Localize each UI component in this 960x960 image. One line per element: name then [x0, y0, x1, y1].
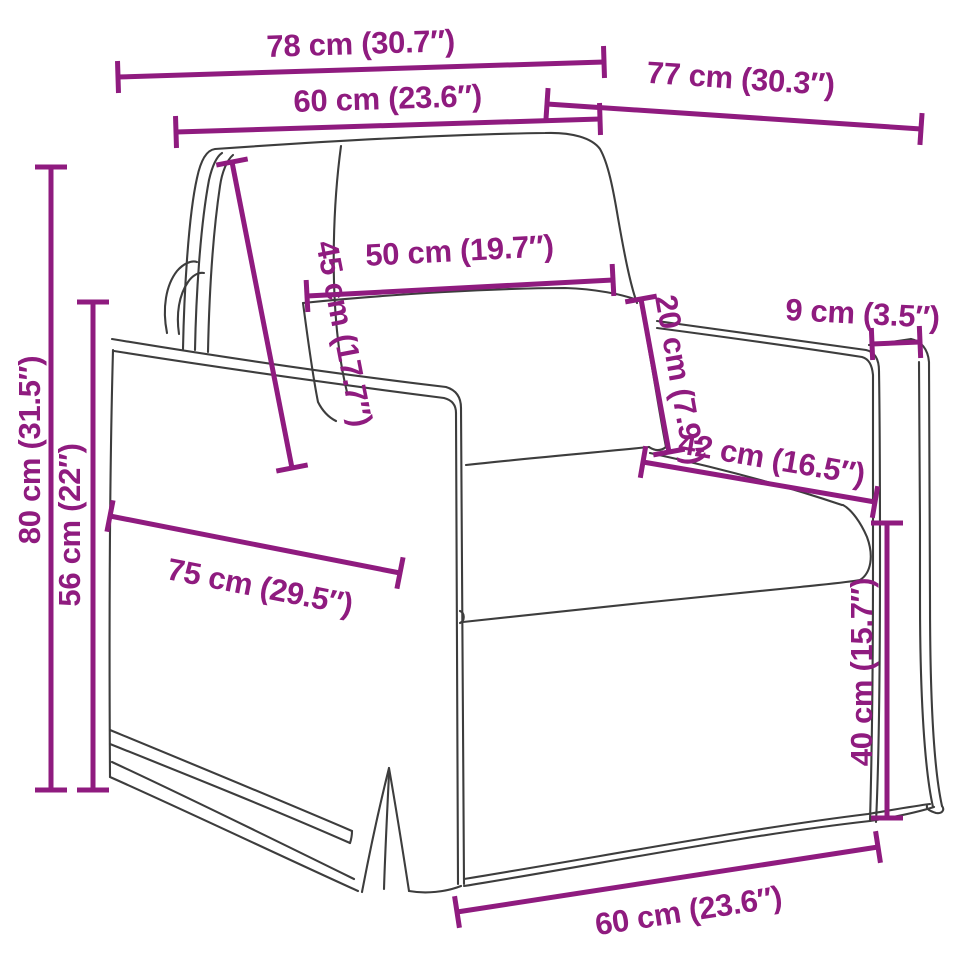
dimension-label: 50 cm (19.7″)	[364, 228, 554, 273]
dimension-end-tick	[397, 557, 403, 588]
hem-after-pleat	[409, 886, 461, 892]
dimension-back-cushion-height: 45 cm (17.7″)	[216, 159, 379, 471]
dimension-line	[176, 119, 600, 132]
skirt-band-top	[110, 730, 352, 831]
dimension-label: 78 cm (30.7″)	[266, 23, 455, 64]
dimension-end-tick	[276, 465, 307, 471]
seat-back-crease	[466, 447, 649, 465]
lumbar-pillow-bottom-corner	[649, 447, 666, 450]
dimension-line	[547, 104, 921, 129]
left-panel-hem-inner	[112, 762, 354, 879]
dimension-front-width-bottom: 60 cm (23.6″)	[455, 831, 881, 942]
armrest-left-top-edge-outer	[112, 339, 461, 408]
dimension-end-tick	[546, 88, 548, 120]
dimension-line	[118, 62, 604, 77]
dimension-arm-height: 56 cm (22″)	[52, 302, 109, 790]
dimension-end-tick	[876, 831, 881, 863]
front-hem-upper	[464, 804, 930, 879]
dimension-end-tick	[612, 264, 614, 296]
dimension-end-tick	[871, 328, 872, 360]
armchair-dimension-diagram: 78 cm (30.7″)60 cm (23.6″)77 cm (30.3″)8…	[0, 0, 960, 960]
dimension-side-depth: 75 cm (29.5″)	[107, 500, 403, 622]
armrest-left-front-edge-outer	[461, 408, 464, 884]
dimension-line	[872, 342, 920, 344]
dimension-label: 60 cm (23.6″)	[293, 78, 482, 119]
right-outer-edge-1	[911, 339, 942, 806]
seat-cushion-front-edge	[463, 580, 860, 622]
dimension-end-tick	[107, 500, 113, 531]
dimension-line	[110, 516, 400, 573]
armrest-left-front-edge-inner	[456, 413, 458, 884]
dimension-end-tick	[306, 280, 308, 312]
dimension-end-tick	[455, 896, 460, 928]
dimension-annotations: 78 cm (30.7″)60 cm (23.6″)77 cm (30.3″)8…	[12, 23, 941, 942]
skirt-pleat-right	[389, 768, 409, 891]
dimension-end-tick	[118, 61, 119, 93]
dimension-end-tick	[640, 446, 645, 478]
skirt-band-end	[350, 831, 352, 843]
left-panel-left-edge	[110, 350, 113, 777]
dimension-label: 40 cm (15.7″)	[844, 578, 879, 766]
skirt-pleat-inner	[384, 774, 389, 889]
dimension-label: 75 cm (29.5″)	[164, 551, 356, 622]
dimension-label: 77 cm (30.3″)	[646, 55, 836, 102]
dimension-label: 9 cm (3.5″)	[784, 292, 940, 335]
dimension-line	[232, 162, 292, 468]
seat-cushion-right-corner	[843, 505, 871, 580]
dimension-end-tick	[920, 113, 922, 145]
dimension-label: 56 cm (22″)	[52, 443, 87, 606]
dimension-end-tick	[604, 46, 605, 78]
rear-frame-arc-inner	[178, 273, 204, 334]
back-cushion-piping-2	[208, 155, 233, 352]
dimension-end-tick	[216, 159, 247, 165]
dimension-label: 80 cm (31.5″)	[12, 356, 47, 544]
diagram-canvas: 78 cm (30.7″)60 cm (23.6″)77 cm (30.3″)8…	[0, 0, 960, 960]
dimension-end-tick	[176, 116, 177, 148]
